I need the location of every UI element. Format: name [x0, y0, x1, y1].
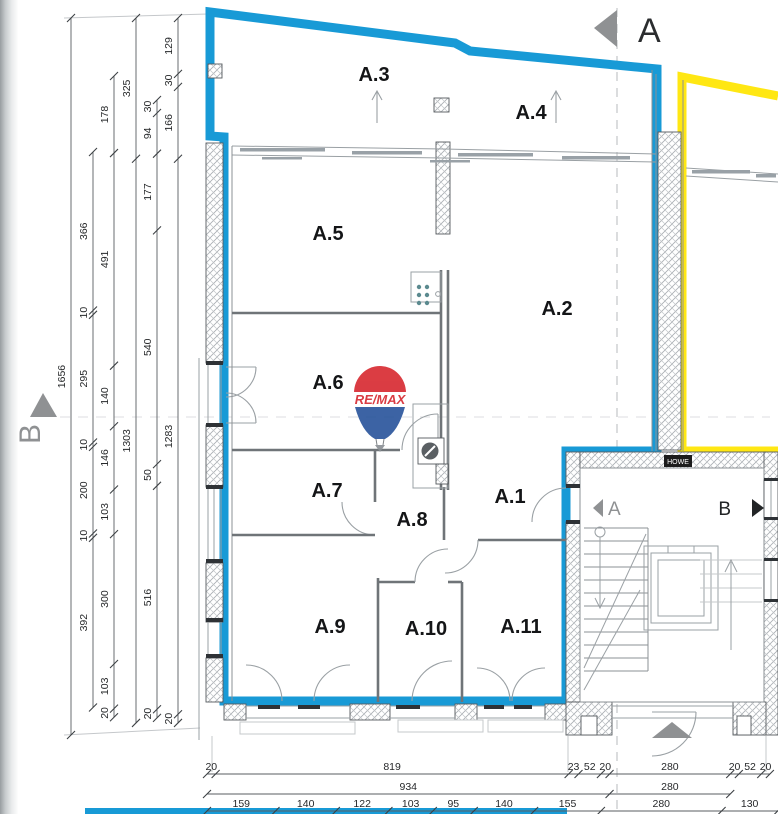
room-label: A.3 — [358, 64, 389, 86]
section-a-triangle-icon — [594, 10, 617, 47]
floorplan-drawing: HOWE A B A B RE/MAX 16563661029510200103… — [0, 0, 778, 814]
dimension-label: 23 — [568, 761, 580, 773]
floorplan-page: HOWE A B A B RE/MAX 16563661029510200103… — [0, 0, 778, 814]
dimension-label: 159 — [232, 798, 250, 810]
dimension-label: 10 — [78, 439, 90, 451]
dimension-label: 178 — [99, 106, 111, 124]
dimension-label: 20 — [205, 761, 217, 773]
dimension-label: 392 — [78, 614, 90, 632]
dimension-label: 103 — [402, 798, 420, 810]
dimension-label: 300 — [99, 590, 111, 608]
dimension-label: 166 — [163, 114, 175, 132]
dimension-label: 20 — [599, 761, 611, 773]
entrance-direction-triangle — [652, 722, 692, 738]
dimension-label: 491 — [99, 250, 111, 268]
stair-badge-text: HOWE — [667, 459, 689, 466]
dimension-label: 140 — [297, 798, 315, 810]
dimension-label: 10 — [78, 307, 90, 319]
dimension-label: 95 — [447, 798, 459, 810]
unit-boundary-yellow — [682, 77, 778, 451]
remax-balloon-logo: RE/MAX — [352, 366, 408, 452]
room-label: A.8 — [396, 509, 427, 531]
section-marker-b: B — [14, 393, 57, 444]
room-label: A.4 — [515, 102, 547, 124]
dimension-label: 540 — [142, 338, 154, 356]
dimension-label: 155 — [559, 798, 577, 810]
dimension-label: 280 — [653, 798, 671, 810]
dimension-label: 52 — [584, 761, 596, 773]
dimension-label: 819 — [383, 761, 401, 773]
dimension-label: 1303 — [121, 429, 133, 453]
dimension-label: 20 — [142, 708, 154, 720]
room-label: A.9 — [314, 616, 345, 638]
dimension-label: 94 — [142, 127, 154, 139]
stairwell-view-markers: A B — [593, 499, 764, 520]
dimension-label: 103 — [99, 677, 111, 695]
dimension-label: 130 — [741, 798, 759, 810]
dimension-label: 934 — [400, 781, 418, 793]
dimension-label: 30 — [142, 100, 154, 112]
dimension-label: 20 — [99, 707, 111, 719]
dimension-label: 295 — [78, 370, 90, 388]
dimension-label: 516 — [142, 589, 154, 607]
scan-edge-strip — [0, 0, 18, 814]
dimension-label: 1283 — [163, 425, 175, 449]
view-a-triangle-icon — [593, 499, 603, 517]
dimension-label: 129 — [163, 37, 175, 55]
dimension-label: 20 — [729, 761, 741, 773]
view-b-triangle-icon — [752, 499, 764, 517]
dimension-label: 140 — [495, 798, 513, 810]
room-label: A.11 — [500, 616, 541, 638]
left-dimension-chains: 1656366102951020010392178491140146103300… — [56, 14, 182, 739]
unit-boundary-blue — [210, 12, 657, 701]
dimension-label: 50 — [142, 469, 154, 481]
section-b-triangle-icon — [30, 393, 57, 417]
neighbor-facade-windows — [686, 168, 778, 182]
dimension-label: 177 — [142, 183, 154, 201]
room-label: A.6 — [312, 372, 343, 394]
dimension-label: 280 — [661, 761, 679, 773]
room-label: A.5 — [312, 223, 343, 245]
dimension-label: 200 — [78, 481, 90, 499]
remax-logo-text: RE/MAX — [355, 392, 407, 407]
dimension-tick — [597, 807, 605, 814]
view-a-label: A — [608, 499, 621, 520]
dimension-label: 30 — [163, 74, 175, 86]
view-b-label: B — [718, 499, 731, 520]
room-label: A.1 — [494, 486, 525, 508]
section-marker-a: A — [594, 10, 661, 50]
dimension-label: 20 — [163, 713, 175, 725]
dimension-label: 280 — [661, 781, 679, 793]
bottom-dimension-rows: 2081923522028020522093428015914012210395… — [203, 761, 778, 814]
room-label: A.10 — [405, 618, 447, 640]
dimension-label: 146 — [99, 449, 111, 467]
dimension-label: 140 — [99, 387, 111, 405]
section-b-label: B — [14, 424, 47, 444]
dimension-label: 122 — [353, 798, 371, 810]
dimension-tick — [774, 807, 778, 814]
dimension-label: 52 — [744, 761, 756, 773]
dimension-label: 103 — [99, 503, 111, 521]
dimension-label: 10 — [78, 530, 90, 542]
room-label: A.7 — [311, 480, 342, 502]
dimension-label: 366 — [78, 222, 90, 240]
exterior-walls — [206, 64, 778, 735]
section-a-label: A — [638, 12, 661, 50]
interior-walls — [232, 70, 683, 702]
dimension-tick — [718, 807, 726, 814]
dimension-label: 325 — [121, 79, 133, 97]
dimension-label: 20 — [760, 761, 772, 773]
room-label: A.2 — [541, 298, 572, 320]
dimension-label: 1656 — [56, 365, 68, 389]
